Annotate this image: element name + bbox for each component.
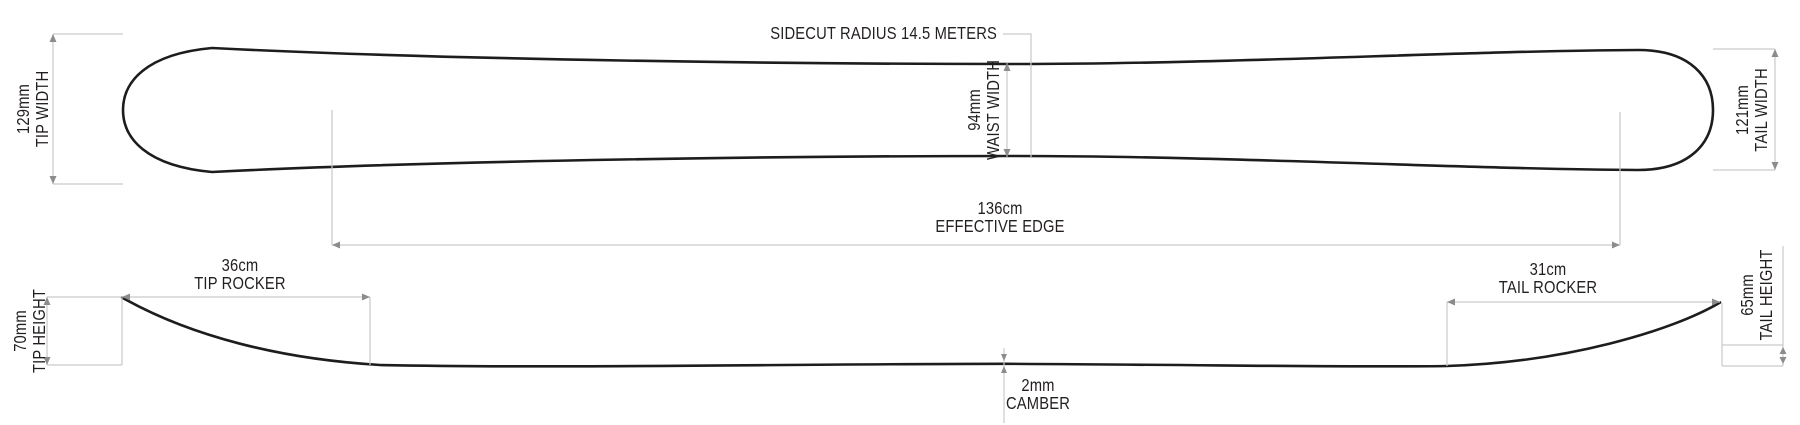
effective-edge-value: 136cm: [977, 199, 1022, 219]
effective-edge-label: EFFECTIVE EDGE: [935, 217, 1064, 237]
camber-dimension: 2mm CAMBER: [1001, 348, 1070, 423]
camber-value: 2mm: [1021, 376, 1054, 396]
camber-label: CAMBER: [1006, 394, 1070, 414]
waist-width-value: 94mm: [965, 89, 985, 131]
tip-height-dimension: 70mm TIP HEIGHT: [11, 289, 122, 373]
tail-height-value: 65mm: [1738, 274, 1758, 316]
tail-height-label: TAIL HEIGHT: [1757, 249, 1777, 340]
tail-rocker-value: 31cm: [1530, 260, 1567, 280]
tail-rocker-label: TAIL ROCKER: [1499, 278, 1597, 298]
waist-width-dimension: 94mm WAIST WIDTH: [965, 60, 1011, 160]
side-profile-view: 70mm TIP HEIGHT 36cm TIP ROCKER 2mm CAMB…: [11, 246, 1787, 423]
waist-width-label: WAIST WIDTH: [984, 60, 1004, 160]
tip-width-label: TIP WIDTH: [33, 71, 53, 148]
tail-width-value: 121mm: [1733, 85, 1753, 135]
tip-height-value: 70mm: [11, 310, 31, 352]
tip-rocker-value: 36cm: [222, 256, 259, 276]
tip-rocker-label: TIP ROCKER: [194, 274, 285, 294]
tip-width-dimension: 129mm TIP WIDTH: [14, 34, 123, 184]
top-view: 129mm TIP WIDTH SIDECUT RADIUS 14.5 METE…: [14, 24, 1779, 249]
tip-height-label: TIP HEIGHT: [30, 289, 50, 373]
tail-height-dimension: 65mm TAIL HEIGHT: [1722, 246, 1787, 366]
tail-width-label: TAIL WIDTH: [1752, 68, 1772, 152]
tail-width-dimension: 121mm TAIL WIDTH: [1713, 49, 1779, 170]
ski-dimension-diagram: 129mm TIP WIDTH SIDECUT RADIUS 14.5 METE…: [0, 0, 1800, 425]
ski-profile-curve: [122, 298, 1720, 367]
ski-top-outline: [123, 48, 1713, 172]
tip-width-value: 129mm: [14, 84, 34, 134]
sidecut-radius-label: SIDECUT RADIUS 14.5 METERS: [770, 24, 997, 44]
tip-rocker-dimension: 36cm TIP ROCKER: [122, 256, 370, 365]
ski-spec-page: 129mm TIP WIDTH SIDECUT RADIUS 14.5 METE…: [0, 0, 1800, 425]
